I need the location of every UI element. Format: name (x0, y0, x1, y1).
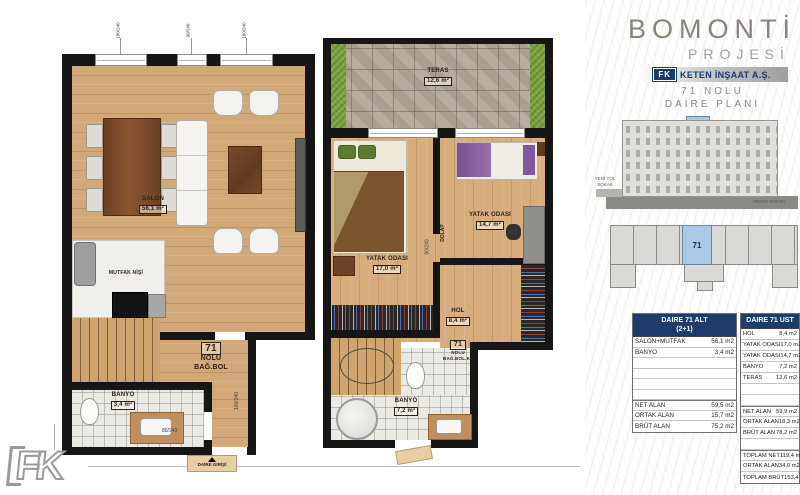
bedroom1-label: YATAK ODASI 17,0 m² (352, 256, 422, 274)
desk (523, 206, 545, 264)
wall (545, 38, 553, 350)
street-label-left: YENİ YOL SOKAK (588, 176, 622, 188)
unit-tag-line: BAĞ.BOL.KT (443, 356, 473, 361)
bed-single (456, 142, 538, 180)
table-row: NET ALAN59,9 m2 (741, 406, 799, 417)
project-title: BOMONTİ (628, 14, 796, 45)
site-plan-wing (772, 264, 798, 288)
site-plan-core-step (697, 281, 713, 291)
table-row: BANYO7,2 m2 (741, 362, 799, 373)
armchair (213, 228, 243, 254)
wall (323, 440, 395, 448)
terrace-label: TERAS 12,6 m² (408, 68, 468, 86)
grass-strip (530, 44, 545, 132)
dimension-leader (191, 38, 192, 54)
unit-number: 71 (450, 340, 466, 350)
table-row: YATAK ODASI14,7 m2 (741, 351, 799, 362)
bathroom-door-leaf (395, 445, 433, 465)
wardrobe-label: DOLAP (440, 224, 446, 242)
unit-number: 71 (201, 342, 221, 355)
kitchen-label: MUTFAK NİŞİ (96, 270, 156, 276)
window-dimension: 180/240 (242, 22, 247, 38)
table-row: BRÜT ALAN75,2 m2 (633, 421, 736, 432)
room-name: BANYO (112, 392, 135, 398)
tv-unit (295, 138, 306, 232)
bedroom2-label: YATAK ODASI 14,7 m² (455, 212, 525, 230)
dining-chair (86, 188, 103, 212)
project-subtitle: PROJESİ (688, 46, 790, 62)
bed-double (333, 140, 407, 254)
armchair (249, 228, 279, 254)
bathroom-label-upper: BANYO 7,2 m² (386, 398, 426, 416)
bathroom-label-lower: BANYO 3,4 m² (100, 392, 146, 410)
fk-logo-icon: FK (14, 449, 61, 483)
window-dimension: 180/240 (116, 22, 121, 38)
table-row: SALON+MUTFAK56,1 m2 (633, 337, 736, 348)
company-bar: FK KETEN İNŞAAT A.Ş. (636, 67, 788, 82)
salon-label: SALON 56,1 m² (130, 196, 176, 214)
building-elevation (622, 120, 778, 197)
room-name: TERAS (427, 68, 448, 74)
entrance-porch: DAİRE GİRİŞİ (187, 455, 237, 472)
room-name: BANYO (395, 398, 418, 404)
room-area: 7,2 m² (394, 407, 419, 417)
table-header: DAIRE 71 UST (741, 314, 799, 329)
company-name: KETEN İNŞAAT A.Ş. (680, 70, 771, 80)
table-row: TOPLAM NET119,4 m2 (741, 450, 799, 461)
room-area: 8,4 m² (446, 317, 471, 327)
blanket (334, 171, 404, 252)
pillow (358, 145, 376, 159)
plan-caption-line2: DAİRE PLANI (640, 99, 785, 110)
table-row: TERAS12,6 m2 (741, 373, 799, 384)
table-row: HOL8,4 m2 (741, 329, 799, 340)
table-row (741, 439, 799, 450)
dimension-leader (120, 38, 121, 54)
table-row (633, 358, 736, 369)
unit-tag-lower: 71 NOLU BAĞ.BOL (190, 342, 232, 373)
nightstand (537, 142, 545, 156)
wall (245, 332, 315, 340)
wall (323, 330, 440, 338)
terrace-door (368, 128, 438, 138)
table-row: ORTAK ALAN15,7 m2 (633, 411, 736, 422)
purple-blanket (457, 143, 491, 177)
site-plan-wing (610, 264, 636, 288)
table-daire-71-alt: DAIRE 71 ALT (2+1) SALON+MUTFAK56,1 m2 B… (632, 313, 737, 433)
wall (62, 54, 72, 455)
entrance-label: DAİRE GİRİŞİ (188, 462, 236, 467)
wall (160, 332, 215, 340)
wall (247, 447, 256, 455)
wall (204, 440, 212, 447)
window (177, 54, 207, 66)
room-name: SALON (142, 196, 164, 202)
unit-tag-upper: 71 NOLU BAĞ.BOL.KT (441, 340, 475, 361)
company-logo-icon: FK (653, 68, 676, 81)
window-dimension: 90/240 (185, 24, 190, 38)
wall (62, 382, 212, 390)
table-row: NET ALAN59,5 m2 (633, 400, 736, 411)
table-row (741, 395, 799, 406)
wardrobe (521, 265, 545, 342)
sofa (176, 120, 208, 226)
site-plan-core (684, 264, 724, 282)
table-row: TOPLAM BRÜT153,4 m2 (741, 472, 799, 483)
wall (62, 447, 212, 455)
room-name: HOL (451, 308, 464, 314)
unit-tag-line: NOLU (451, 350, 465, 355)
toilet (406, 362, 425, 389)
dining-chair (86, 156, 103, 180)
door-dimension: 100/240 (234, 392, 240, 410)
table-header: DAIRE 71 ALT (2+1) (633, 314, 736, 337)
staircase-lower (72, 318, 160, 382)
wall (305, 54, 315, 340)
fridge (74, 242, 96, 286)
wall (470, 342, 553, 350)
purple-pillow (523, 145, 535, 175)
door-dimension: 90/240 (425, 239, 431, 254)
terrace-floor (331, 44, 545, 132)
unit-tag-line: BAĞ.BOL (194, 364, 228, 371)
armchair (249, 90, 279, 116)
wall (323, 38, 553, 44)
footer-logo: FK (8, 446, 59, 486)
dimension-leader (246, 38, 247, 54)
grass-strip (331, 44, 346, 132)
floor-plan-sheet: 180/240 90/240 180/240 SALON 56,1 m² MUT… (0, 0, 800, 495)
pillow (338, 145, 356, 159)
table-row (633, 369, 736, 380)
window (220, 54, 273, 66)
room-name: YATAK ODASI (366, 256, 408, 262)
wall (433, 138, 440, 234)
entry-corridor-floor (212, 382, 248, 447)
kitchen-counter (148, 294, 166, 318)
table-row: BANYO3,4 m2 (633, 348, 736, 359)
site-plan-unit-71: 71 (682, 225, 712, 265)
footer-divider (88, 466, 580, 467)
wardrobe (331, 305, 433, 330)
table-row: BRÜT ALAN78,2 m2 (741, 428, 799, 439)
room-area: 3,4 m² (111, 401, 136, 411)
sink (436, 419, 462, 434)
table-row: ORTAK ALAN18,3 m2 (741, 417, 799, 428)
table-row (633, 379, 736, 390)
terrace-door (455, 128, 525, 138)
bathtub (336, 398, 378, 440)
dining-chair (86, 124, 103, 148)
wall (248, 340, 256, 455)
room-area: 17,0 m² (373, 265, 401, 275)
table-row (633, 390, 736, 401)
stove (112, 292, 148, 318)
coffee-table (228, 146, 262, 194)
unit-tag-line: NOLU (201, 355, 222, 362)
window (95, 54, 147, 66)
stair-rail (340, 348, 394, 384)
toilet (80, 398, 99, 425)
street-label-right: PERPA TARAFI (744, 199, 794, 205)
room-name: YATAK ODASI (469, 212, 511, 218)
wall (204, 382, 212, 412)
door-dimension: 80/240 (162, 428, 177, 434)
armchair (213, 90, 243, 116)
wall (431, 440, 478, 448)
room-area: 12,6 m² (424, 77, 452, 87)
room-area: 14,7 m² (476, 221, 504, 231)
plan-caption-line1: 71 NOLU (640, 86, 785, 97)
wall (433, 262, 440, 337)
table-row (741, 384, 799, 395)
table-daire-71-ust: DAIRE 71 UST HOL8,4 m2 YATAK ODASI17,0 m… (740, 313, 800, 484)
table-row: ORTAK ALAN34,0 m2 (741, 461, 799, 472)
room-area: 56,1 m² (139, 205, 167, 215)
wall (323, 38, 331, 448)
table-row: YATAK ODASI17,0 m2 (741, 340, 799, 351)
elevation-curb (596, 189, 624, 197)
hall-label: HOL 8,4 m² (440, 308, 476, 326)
